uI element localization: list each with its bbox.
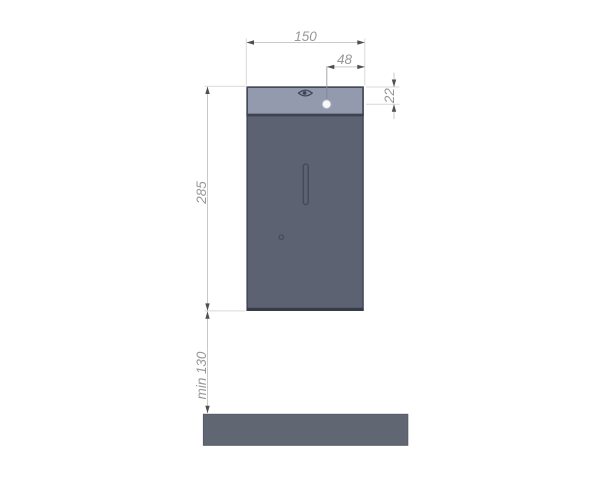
svg-text:48: 48 [337,52,353,67]
svg-text:285: 285 [194,181,209,205]
svg-text:min 130: min 130 [194,351,209,399]
svg-text:150: 150 [294,29,317,44]
svg-text:22: 22 [382,88,397,105]
